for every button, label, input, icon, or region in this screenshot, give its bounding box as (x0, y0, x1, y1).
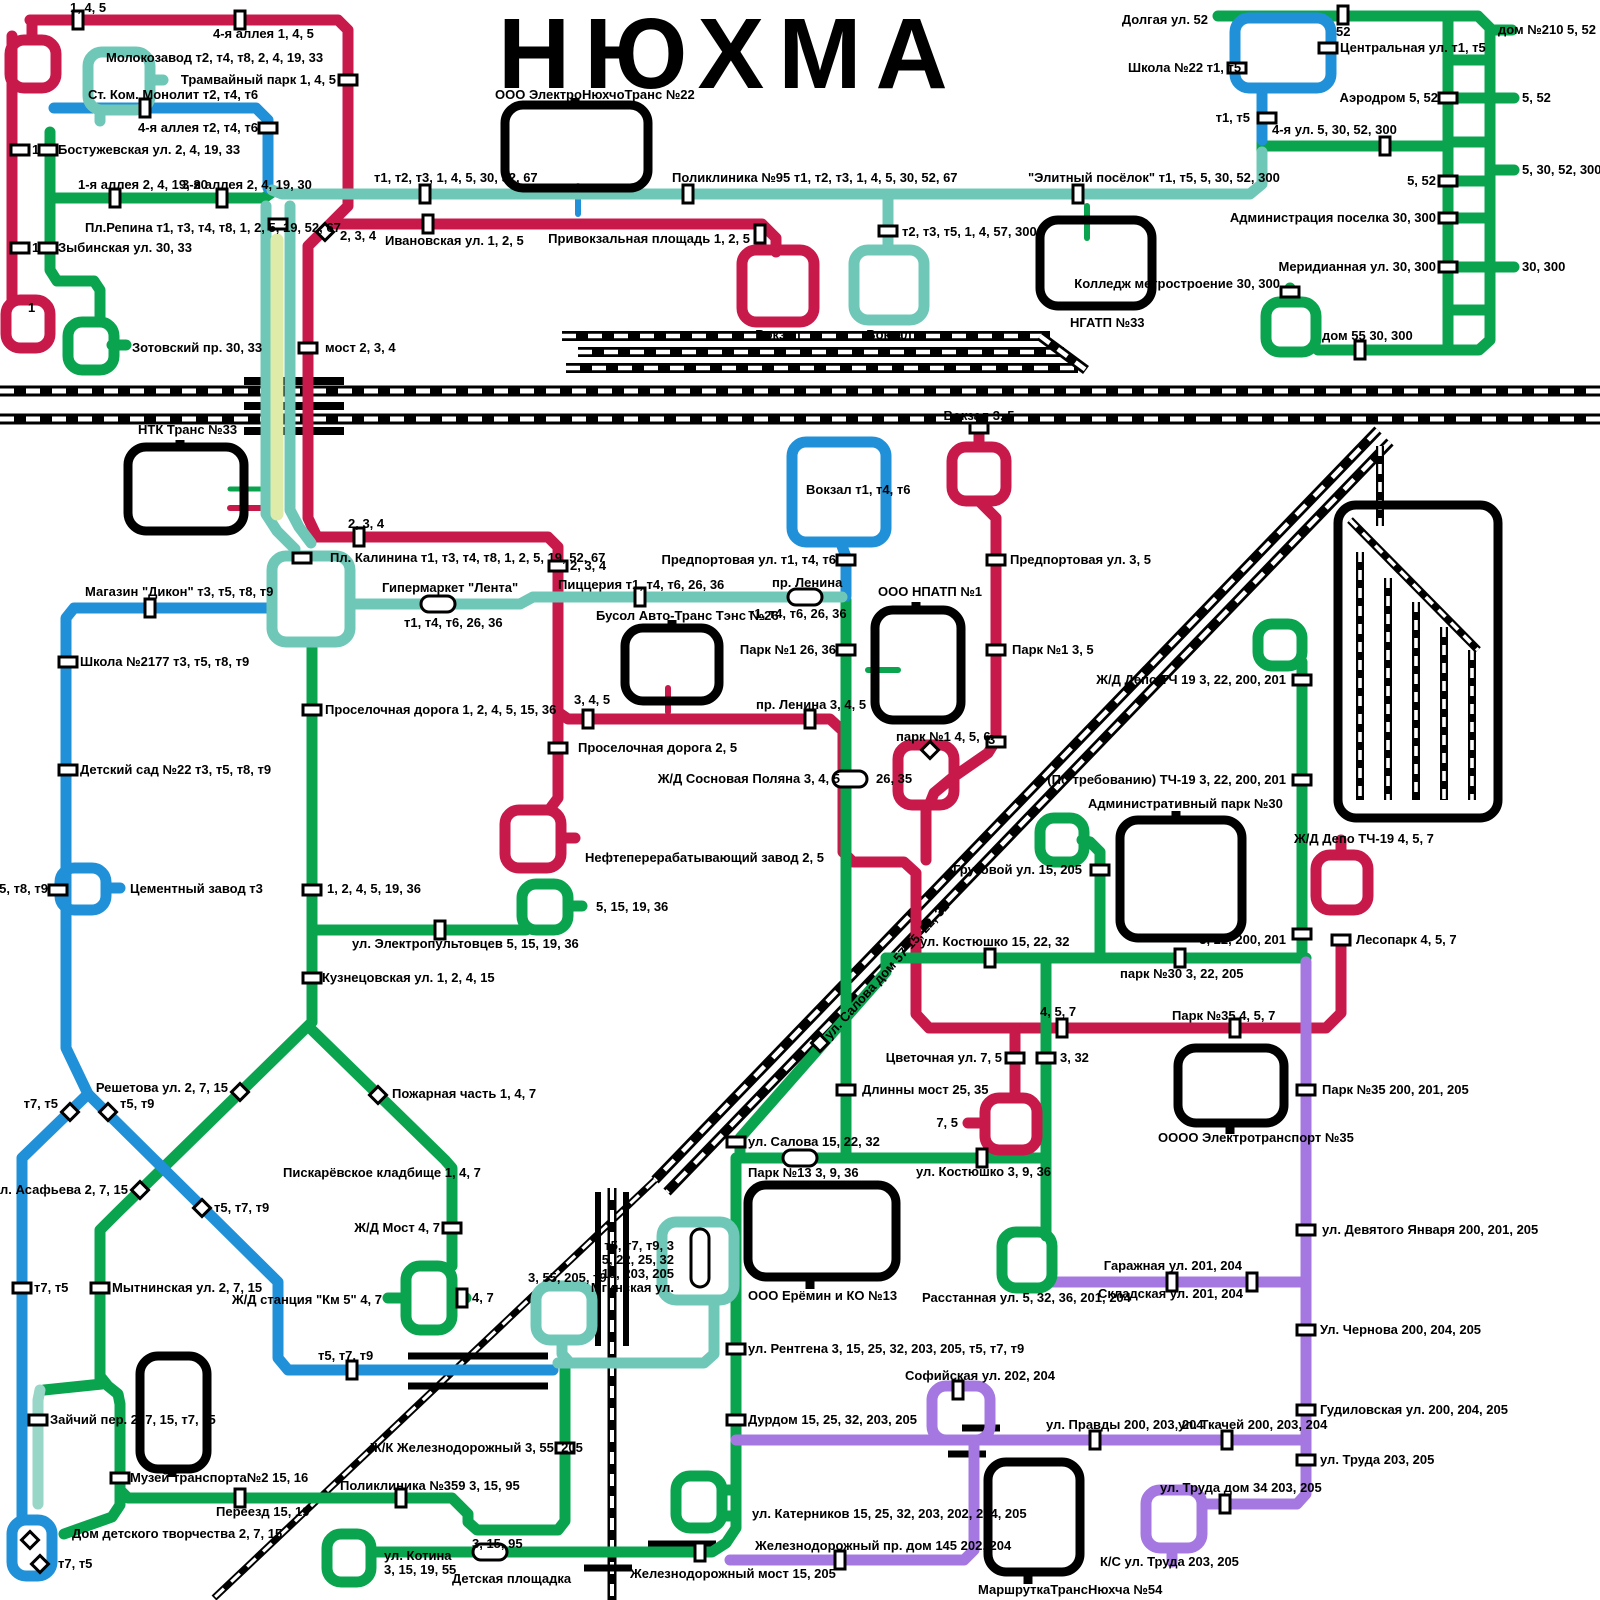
map-label: 4-я аллея т2, т4, т6 (138, 120, 258, 135)
station-tick (111, 1473, 129, 1483)
station-tick (423, 215, 433, 233)
station-tick (1220, 1495, 1230, 1513)
map-label: Грузовой ул. 15, 205 (953, 862, 1082, 877)
station-tick (49, 885, 67, 895)
map-label: НГАТП №33 (1070, 315, 1145, 330)
station-tick (11, 243, 29, 253)
map-label: Ст. Ком. Монолит т2, т4, т6 (88, 87, 258, 102)
map-label: К/С ул. Труда 203, 205 (1100, 1554, 1239, 1569)
map-label: ул. Катерников 15, 25, 32, 203, 202, 204… (752, 1506, 1027, 1521)
station-tick (259, 123, 277, 133)
station-tick (1073, 185, 1083, 203)
station-tick (39, 243, 57, 253)
map-label: 4, 5, 7 (1040, 1004, 1076, 1019)
map-label: 1 (32, 240, 39, 255)
map-label: Железнодорожный мост 15, 205 (629, 1566, 836, 1581)
map-label: ООО Ерёмин и КО №13 (748, 1288, 897, 1303)
map-label: 4-я ул. 5, 30, 52, 300 (1272, 122, 1397, 137)
map-label: Пискарёвское кладбище 1, 4, 7 (283, 1165, 481, 1180)
station-tick (1037, 1053, 1055, 1063)
map-label: т7, т5 (58, 1556, 92, 1571)
station-tick (583, 710, 593, 728)
station-pill (783, 1150, 817, 1166)
map-label: Предпортовая ул. т1, т4, т6 (662, 552, 837, 567)
map-label: Парк №1 26, 36 (740, 642, 836, 657)
station-tick (879, 226, 897, 236)
map-label: ул. Асафьева 2, 7, 15 (0, 1182, 128, 1197)
map-label: Кузнецовская ул. 1, 2, 4, 15 (322, 970, 495, 985)
map-label: Поликлиника №359 3, 15, 95 (340, 1478, 520, 1493)
station-tick (987, 555, 1005, 565)
map-label: ул. Ткачей 200, 203, 204 (1178, 1417, 1328, 1432)
map-label: Цветочная ул. 7, 5 (886, 1050, 1002, 1065)
map-label: 5, 15, 19, 36 (596, 899, 668, 914)
map-label: дом 55 30, 300 (1322, 328, 1413, 343)
map-label: Вокзал (866, 327, 912, 342)
station-tick (11, 145, 29, 155)
map-label: 3, 4, 5 (574, 692, 610, 707)
map-label: 30, 300 (1522, 259, 1565, 274)
map-label: Парк №35 4, 5, 7 (1172, 1008, 1275, 1023)
map-label: Школа №22 т1, т5 (1128, 60, 1241, 75)
map-label: т2, т3, т5, 1, 4, 57, 300 (902, 224, 1037, 239)
map-label: ул. Электропультовцев 5, 15, 19, 36 (352, 936, 579, 951)
station-tick (303, 973, 321, 983)
station-tick (1439, 176, 1457, 186)
map-label: 3-я аллея 2, 4, 19, 30 (182, 177, 312, 192)
map-label: Ивановская ул. 1, 2, 5 (385, 233, 524, 248)
map-label: т5, т7, т9 (318, 1348, 373, 1363)
map-label: Гипермаркет "Лента" (382, 580, 518, 595)
map-label: 3, 15, 19, 55 (384, 1562, 456, 1577)
map-label: Бостужевская ул. 2, 4, 19, 33 (58, 142, 240, 157)
map-label: ул. Труда дом 34 203, 205 (1160, 1480, 1322, 1495)
map-label: Проселочная дорога 2, 5 (578, 740, 737, 755)
map-label: Гаражная ул. 201, 204 (1104, 1258, 1243, 1273)
map-label: 3 (988, 732, 995, 747)
station-tick (1439, 213, 1457, 223)
map-label: Пл.Репина т1, т3, т4, т8, 1, 2, 5, 19, 5… (85, 220, 341, 235)
station-tick (1355, 341, 1365, 359)
station-tick (1175, 949, 1185, 967)
station-tick (303, 705, 321, 715)
map-label: Расстанная ул. 5, 32, 36, 201, 204 (922, 1290, 1132, 1305)
map-label: 26, 35 (876, 771, 912, 786)
map-label: пр. Ленина 3, 4, 5 (756, 697, 866, 712)
station-tick (727, 1137, 745, 1147)
station-tick (1091, 865, 1109, 875)
map-label: т7, т5 (24, 1096, 58, 1111)
station-tick (683, 185, 693, 203)
map-label: парк №1 4, 5, 6 (896, 729, 991, 744)
station-tick (1006, 1053, 1024, 1063)
station-tick (1090, 1431, 1100, 1449)
map-label: Привокзальная площадь 1, 2, 5 (548, 231, 750, 246)
map-label: 5, 30, 52, 300 (1522, 162, 1600, 177)
map-label: 15, 203, 205 (602, 1266, 674, 1281)
map-label: ул. Салова 15, 22, 32 (748, 1134, 880, 1149)
map-label: 7, 5 (936, 1115, 958, 1130)
station-tick (1281, 287, 1299, 297)
map-label: Бусол Авто-Транс Тэнс №26 (596, 608, 779, 623)
map-label: Предпортовая ул. 3, 5 (1010, 552, 1151, 567)
map-label: Ж/Д Мост 4, 7 (353, 1220, 440, 1235)
station-tick (420, 185, 430, 203)
map-label: 1 (28, 300, 35, 315)
station-tick (805, 710, 815, 728)
map-label: (По требованию) ТЧ-19 3, 22, 200, 201 (1047, 772, 1286, 787)
map-label: 5, 22, 25, 32 (602, 1252, 674, 1267)
map-label: 1 (32, 142, 39, 157)
map-label: Ж/Д станция "Км 5" 4, 7 (231, 1292, 382, 1307)
map-label: ул. Труда 203, 205 (1320, 1452, 1434, 1467)
map-label: Административный парк №30 (1088, 796, 1283, 811)
station-tick (1439, 93, 1457, 103)
map-label: Детский сад №22 т3, т5, т8, т9 (80, 762, 271, 777)
map-label: Молокозавод т2, т4, т8, 2, 4, 19, 33 (106, 50, 323, 65)
map-label: 3, 15, 95 (472, 1536, 523, 1551)
station-tick (835, 1551, 845, 1569)
map-label: 3, 22, 200, 201 (1199, 932, 1286, 947)
map-label: Пожарная часть 1, 4, 7 (392, 1086, 536, 1101)
map-label: 5, 52 (1407, 173, 1436, 188)
map-label: Проселочная дорога 1, 2, 4, 5, 15, 36 (325, 702, 556, 717)
map-label: Железнодорожный пр. дом 145 202, 204 (754, 1538, 1012, 1553)
station-tick (457, 1289, 467, 1307)
map-label: т1, т5 (1216, 110, 1250, 125)
station-tick (953, 1381, 963, 1399)
station-tick (755, 225, 765, 243)
station-tick (1247, 1273, 1257, 1291)
map-label: парк №30 3, 22, 205 (1120, 966, 1244, 981)
map-label: Нефтеперерабатывающий завод 2, 5 (585, 850, 824, 865)
map-label: Софийская ул. 202, 204 (905, 1368, 1056, 1383)
station-tick (1338, 6, 1348, 24)
station-tick (443, 1223, 461, 1233)
map-label: Переезд 15, 19 (216, 1504, 309, 1519)
map-label: Зайчий пер. 2, 7, 15, т7, т5 (50, 1412, 216, 1427)
map-label: Поликлиника №95 т1, т2, т3, 1, 4, 5, 30,… (672, 170, 958, 185)
station-tick (987, 645, 1005, 655)
station-tick (293, 553, 311, 563)
station-tick (1222, 1431, 1232, 1449)
map-label: Вокзал 3, 5 (944, 408, 1015, 423)
map-label: ул. Рентгена 3, 15, 25, 32, 203, 205, т5… (748, 1341, 1024, 1356)
station-tick (59, 765, 77, 775)
station-tick (1297, 1325, 1315, 1335)
station-tick (1439, 262, 1457, 272)
station-tick (13, 1283, 31, 1293)
station-tick (727, 1415, 745, 1425)
map-label: Решетова ул. 2, 7, 15 (96, 1080, 228, 1095)
map-title: НЮХМА (498, 0, 962, 110)
map-label: МаршруткаТрансНюхча №54 (978, 1582, 1163, 1597)
map-label: Музей транспорта№2 15, 16 (130, 1470, 308, 1485)
map-label: ул. Девятого Января 200, 201, 205 (1322, 1222, 1538, 1237)
map-label: Вокзал т1, т4, т6 (806, 482, 910, 497)
map-label: 4-я аллея 1, 4, 5 (213, 26, 314, 41)
map-label: Администрация поселка 30, 300 (1230, 210, 1436, 225)
station-pill (421, 596, 455, 612)
map-label: Вокзал (755, 327, 801, 342)
map-label: ООО НПАТП №1 (878, 584, 982, 599)
map-label: Пл. Калинина т1, т3, т4, т8, 1, 2, 5, 19… (330, 550, 605, 565)
map-label: Гудиловская ул. 200, 204, 205 (1320, 1402, 1508, 1417)
map-label: Зотовский пр. 30, 33 (132, 340, 262, 355)
map-label: 2, 3, 4 (340, 228, 377, 243)
map-label: Ж/К Железнодорожный 3, 55, 205 (369, 1440, 583, 1455)
map-label: Пиццерия т1, т4, т6, 26, 36 (558, 577, 724, 592)
station-tick (1297, 1405, 1315, 1415)
map-label: ул. Костюшко 15, 22, 32 (920, 934, 1070, 949)
station-tick (970, 423, 988, 433)
map-label: Цементный завод т3 (130, 881, 263, 896)
map-label: 5, 52 (1522, 90, 1551, 105)
map-label: Детская площадка (452, 1571, 572, 1586)
station-tick (59, 657, 77, 667)
map-label: мост 2, 3, 4 (325, 340, 396, 355)
map-label: пр. Ленина (772, 575, 843, 590)
map-label: Аэродром 5, 52 (1339, 90, 1438, 105)
map-label: 3, 32 (1060, 1050, 1089, 1065)
map-label: Дом детского творчества 2, 7, 15 (72, 1526, 282, 1541)
map-label: Трамвайный парк 1, 4, 5 (181, 72, 336, 87)
station-pill (691, 1229, 709, 1287)
map-label: Парк №13 3, 9, 36 (748, 1165, 859, 1180)
map-label: Долгая ул. 52 (1122, 12, 1208, 27)
map-label: Колледж метростроение 30, 300 (1074, 276, 1280, 291)
map-label: 2, 3, 4 (348, 516, 385, 531)
station-tick (837, 1085, 855, 1095)
map-label: Магазин "Дикон" т3, т5, т8, т9 (85, 584, 273, 599)
map-label: т5, т7, т9 (214, 1200, 269, 1215)
station-tick (1057, 1019, 1067, 1037)
map-label: Зыбинская ул. 30, 33 (58, 240, 192, 255)
map-label: ул. Костюшко 3, 9, 36 (916, 1164, 1051, 1179)
map-label: Длинны мост 25, 35 (862, 1082, 989, 1097)
station-tick (303, 885, 321, 895)
transit-map-canvas: ООО ЭлектроНюхчоТранс №221, 4, 54-я алле… (0, 0, 1600, 1600)
station-tick (1319, 43, 1337, 53)
map-label: т1, т4, т6, 26, 36 (404, 615, 503, 630)
station-tick (1380, 137, 1390, 155)
map-label: Парк №1 3, 5 (1012, 642, 1094, 657)
map-label: т1, т2, т3, 1, 4, 5, 30, 52, 67 (374, 170, 538, 185)
map-label: Парк №35 200, 201, 205 (1322, 1082, 1469, 1097)
station-tick (1332, 935, 1350, 945)
route-line-seafoam (38, 1390, 40, 1504)
map-label: Лесопарк 4, 5, 7 (1356, 932, 1457, 947)
station-tick (29, 1415, 47, 1425)
map-label: Центральная ул. т1, т5 (1340, 40, 1486, 55)
station-tick (145, 599, 155, 617)
map-label: НТК Транс №33 (138, 422, 237, 437)
station-tick (91, 1283, 109, 1293)
station-tick (1297, 1455, 1315, 1465)
station-tick (549, 743, 567, 753)
map-label: 1, 4, 5 (70, 0, 106, 15)
map-label: "Элитный посёлок" т1, т5, 5, 30, 52, 300 (1028, 170, 1280, 185)
station-tick (837, 645, 855, 655)
station-tick (1293, 675, 1311, 685)
map-label: 1, 2, 4, 5, 19, 36 (327, 881, 421, 896)
station-tick (339, 75, 357, 85)
map-label: т5, т8, т9 (0, 881, 48, 896)
station-tick (1297, 1085, 1315, 1095)
map-label: 2, 3, 4 (570, 558, 607, 573)
station-pill (788, 589, 822, 605)
station-tick (985, 949, 995, 967)
map-label: т7, т5 (34, 1280, 68, 1295)
map-label: Ж/Д Сосновая Поляна 3, 4, 5 (657, 771, 840, 786)
map-label: 3, 55, 205, т9 (528, 1270, 607, 1285)
map-label: Школа №2177 т3, т5, т8, т9 (80, 654, 249, 669)
station-tick (39, 145, 57, 155)
station-tick (727, 1344, 745, 1354)
map-label: ОООО Электротранспорт №35 (1158, 1130, 1354, 1145)
map-label: 52 (1336, 24, 1350, 39)
map-label: т5, т7, т9, 3 (604, 1238, 674, 1253)
map-label: дом №210 5, 52 (1498, 22, 1596, 37)
transit-map: ООО ЭлектроНюхчоТранс №221, 4, 54-я алле… (0, 0, 1600, 1600)
map-label: 4, 7 (472, 1290, 494, 1305)
station-tick (1297, 1225, 1315, 1235)
map-label: Ж/Д Депо ТЧ-19 4, 5, 7 (1293, 831, 1434, 846)
map-label: Дурдом 15, 25, 32, 203, 205 (748, 1412, 917, 1427)
station-tick (1293, 929, 1311, 939)
map-label: ул. Котина (384, 1548, 452, 1563)
station-tick (347, 1361, 357, 1379)
map-label: т5, т9 (120, 1096, 154, 1111)
map-label: Ул. Чернова 200, 204, 205 (1320, 1322, 1481, 1337)
map-label: Ж/Д Депо ТЧ 19 3, 22, 200, 201 (1095, 672, 1286, 687)
station-tick (1293, 775, 1311, 785)
station-tick (695, 1543, 705, 1561)
map-label: Меридианная ул. 30, 300 (1278, 259, 1436, 274)
route-line-green (44, 1384, 102, 1390)
station-tick (299, 343, 317, 353)
station-tick (837, 555, 855, 565)
